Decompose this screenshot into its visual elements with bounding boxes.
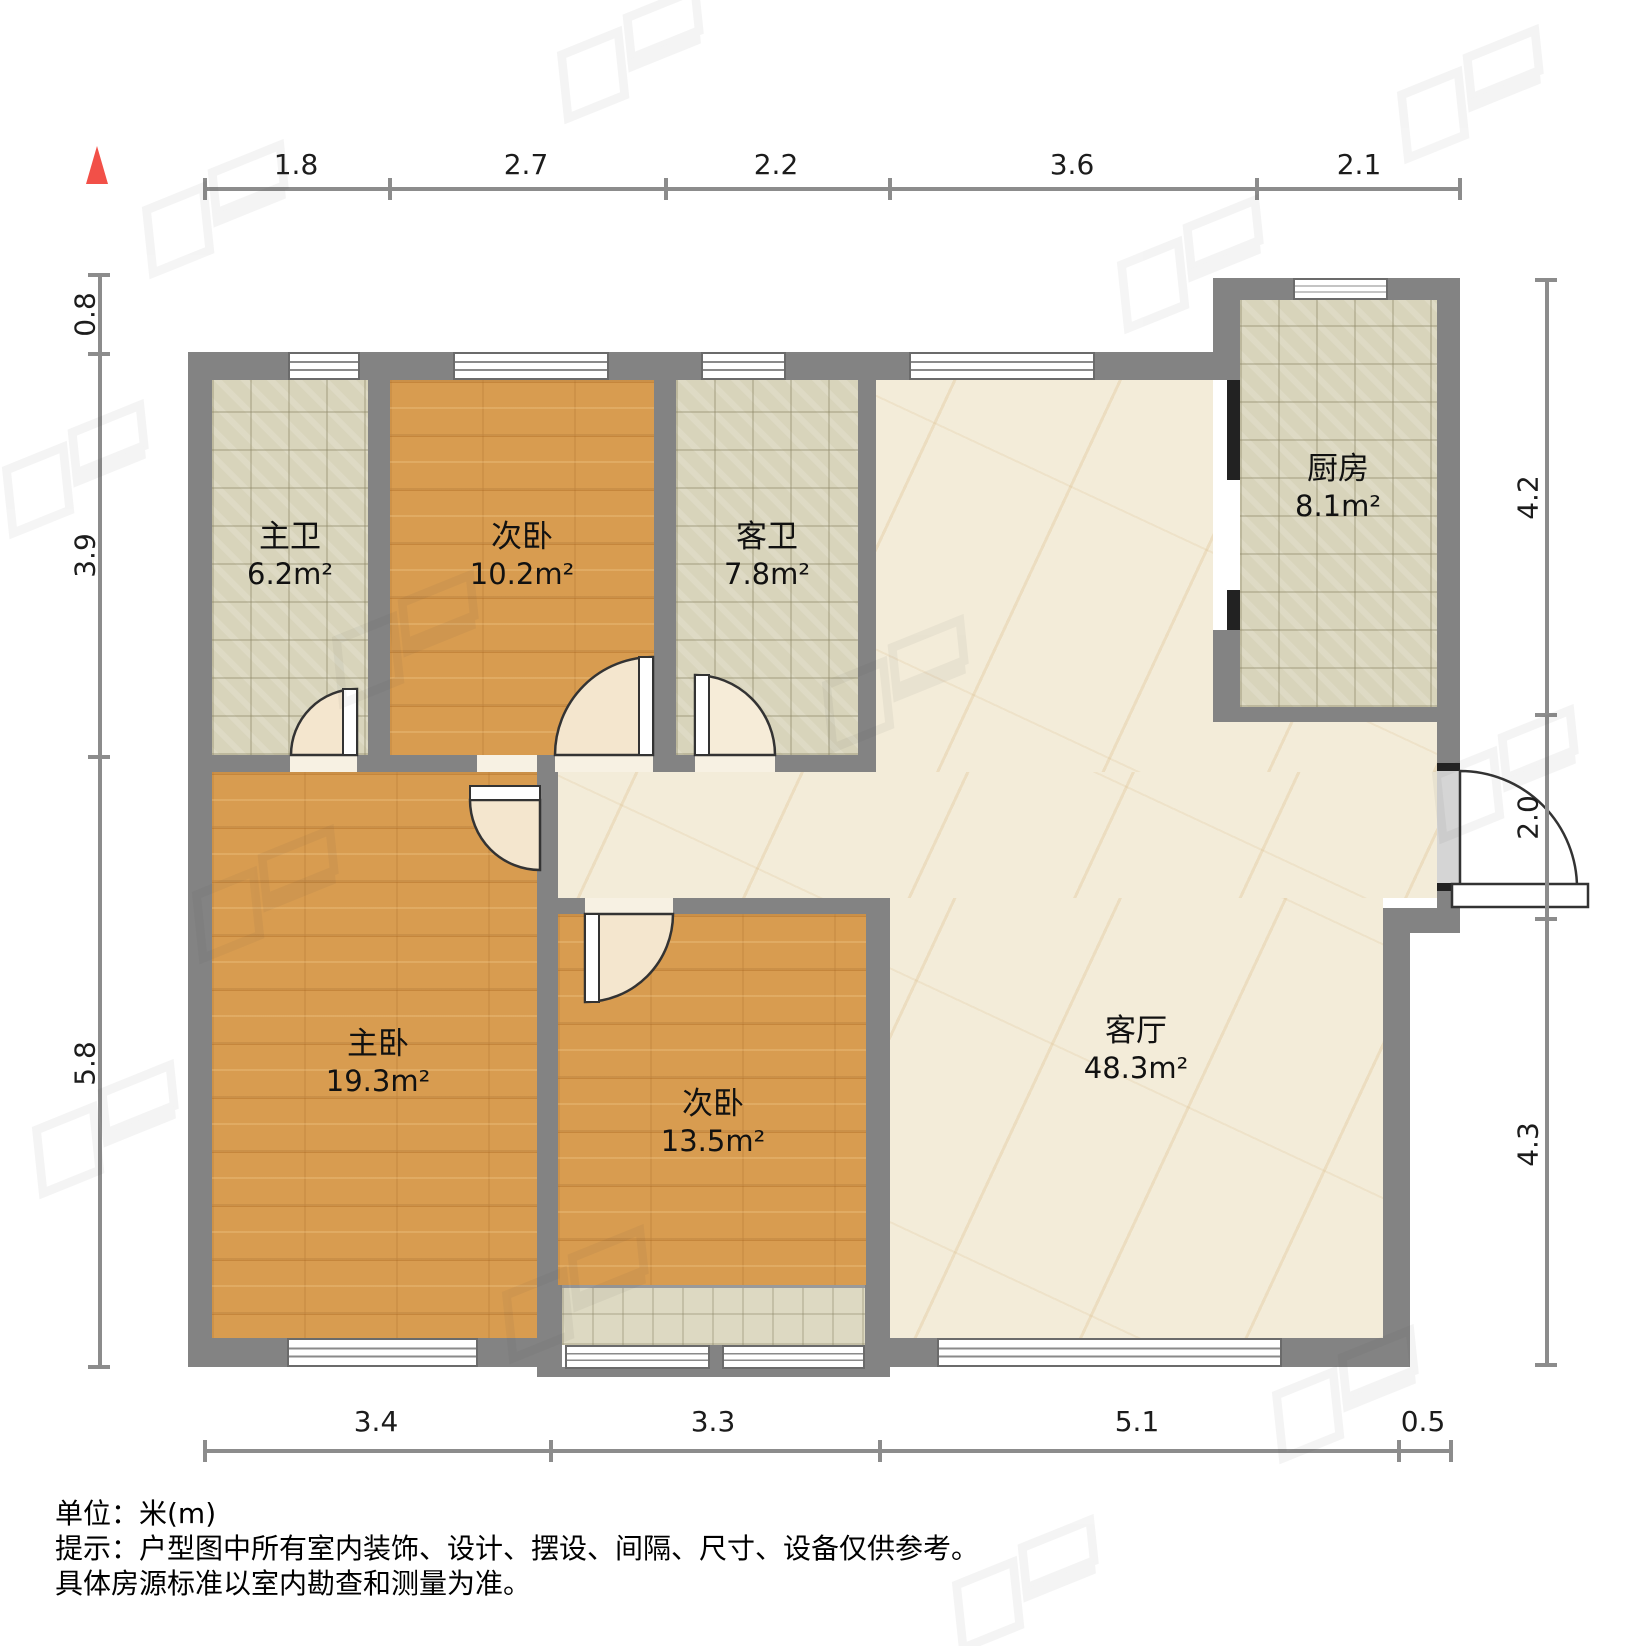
dim-label-left: 0.8 (69, 275, 102, 355)
dim-line-left (98, 273, 102, 1367)
dim-tick (1458, 178, 1462, 200)
window-living-bottom (937, 1338, 1282, 1367)
disclaimer-line1: 提示：户型图中所有室内装饰、设计、摆设、间隔、尺寸、设备仅供参考。 (55, 1531, 979, 1566)
entrance-jamb-bottom (1437, 883, 1460, 891)
door-leaf-entrance (1452, 884, 1588, 907)
room-label-second-bedroom-top: 次卧 10.2m² (412, 518, 632, 592)
dim-tick (203, 1440, 207, 1462)
dim-tick (388, 178, 392, 200)
unit-note: 单位：米(m) (55, 1496, 979, 1531)
dim-label-bottom: 0.5 (1383, 1405, 1463, 1438)
room-name: 主卫 (180, 518, 400, 556)
dim-label-left: 3.9 (69, 516, 102, 596)
dim-tick (88, 1365, 110, 1369)
dim-tick (664, 178, 668, 200)
dim-label-bottom: 3.3 (673, 1405, 753, 1438)
dim-tick (1535, 278, 1557, 282)
window-second-bedroom-top (453, 352, 609, 380)
dim-tick (1535, 1363, 1557, 1367)
window-guest-bath (701, 352, 786, 380)
room-label-master-bedroom: 主卧 19.3m² (268, 1025, 488, 1099)
wall-right-exterior-upper (1437, 278, 1460, 771)
window-bay-left (565, 1345, 710, 1369)
watermark (1396, 25, 1544, 170)
wall-bay-right (865, 1285, 890, 1377)
dim-tick (1535, 713, 1557, 717)
room-label-master-bath: 主卫 6.2m² (180, 518, 400, 592)
wall-hall-stub (212, 755, 290, 772)
window-living-top (909, 352, 1095, 380)
wall-right-step (1383, 908, 1460, 933)
window-master-bath (288, 352, 360, 380)
room-name: 次卧 (603, 1085, 823, 1123)
doorway-master-bedroom (470, 755, 540, 772)
floor-bay-window (562, 1285, 865, 1345)
dim-label-right: 4.2 (1512, 458, 1545, 538)
wall-bay-left (537, 1285, 562, 1377)
room-name: 主卧 (268, 1025, 488, 1063)
room-area: 13.5m² (603, 1123, 823, 1159)
wall-bedroom2-top-stub (558, 898, 585, 914)
dim-tick (878, 1440, 882, 1462)
wall-master-second-bedroom (537, 772, 558, 1338)
entrance-jamb-top (1437, 763, 1460, 771)
north-arrow-icon (86, 146, 108, 184)
room-area: 10.2m² (412, 556, 632, 592)
wall-left-exterior (188, 352, 212, 1367)
dim-label-bottom: 5.1 (1097, 1405, 1177, 1438)
doorway-second-bedroom-bottom (585, 898, 673, 914)
dim-line-bottom (203, 1449, 1453, 1453)
dim-label-top: 2.1 (1319, 148, 1399, 181)
floor-living-room-lower (876, 898, 1383, 1338)
room-label-second-bedroom-bottom: 次卧 13.5m² (603, 1085, 823, 1159)
room-label-living-room: 客厅 48.3m² (1026, 1012, 1246, 1086)
floor-plan-canvas: 主卫 6.2m² 次卧 10.2m² 客卫 7.8m² 厨房 8.1m² 主卧 … (0, 0, 1650, 1646)
watermark (31, 1060, 179, 1205)
wall-kitchen-left-upper (1213, 300, 1240, 380)
window-master-bedroom (287, 1338, 478, 1367)
wall-hall-stub (357, 755, 477, 772)
room-name: 客厅 (1026, 1012, 1246, 1050)
dim-label-top: 2.2 (736, 148, 816, 181)
disclaimer-line2: 具体房源标准以室内勘查和测量为准。 (55, 1566, 979, 1601)
dim-tick (888, 178, 892, 200)
wall-right-exterior-lower (1383, 933, 1410, 1367)
room-name: 厨房 (1228, 450, 1448, 488)
dim-tick (1255, 178, 1259, 200)
footer-notes: 单位：米(m) 提示：户型图中所有室内装饰、设计、摆设、间隔、尺寸、设备仅供参考… (55, 1496, 979, 1601)
floor-hallway (558, 772, 1437, 898)
wall-hall-stub (537, 755, 555, 772)
room-name: 客卫 (657, 518, 877, 556)
dim-label-bottom: 3.4 (336, 1405, 416, 1438)
wall-hall-stub (653, 755, 695, 772)
window-bay-right (722, 1345, 865, 1369)
dim-label-top: 1.8 (256, 148, 336, 181)
room-area: 48.3m² (1026, 1050, 1246, 1086)
dim-label-right: 2.0 (1512, 778, 1545, 858)
room-label-guest-bath: 客卫 7.8m² (657, 518, 877, 592)
room-area: 8.1m² (1228, 488, 1448, 524)
dim-label-top: 2.7 (486, 148, 566, 181)
dim-label-top: 3.6 (1032, 148, 1112, 181)
kitchen-door-jamb-lower (1227, 590, 1240, 630)
floor-living-room-upper (876, 380, 1213, 772)
room-area: 19.3m² (268, 1063, 488, 1099)
dim-label-right: 4.3 (1512, 1105, 1545, 1185)
doorway-guest-bath (695, 755, 775, 772)
dim-tick (88, 755, 110, 759)
wall-bedroom-living (866, 898, 890, 1338)
room-label-kitchen: 厨房 8.1m² (1228, 450, 1448, 524)
dim-tick (549, 1440, 553, 1462)
dim-label-left: 5.8 (69, 1024, 102, 1104)
room-area: 7.8m² (657, 556, 877, 592)
doorway-second-bedroom-top (555, 755, 653, 772)
window-kitchen (1293, 278, 1388, 300)
wall-bay-post (710, 1345, 722, 1369)
wall-kitchen-bottom (1213, 707, 1460, 722)
room-area: 6.2m² (180, 556, 400, 592)
dim-line-right (1545, 278, 1549, 1367)
floor-living-room-right (1213, 722, 1437, 772)
room-name: 次卧 (412, 518, 632, 556)
dim-tick (1535, 917, 1557, 921)
entrance-threshold (1437, 771, 1460, 891)
dim-tick (1449, 1440, 1453, 1462)
dim-tick (203, 178, 207, 200)
doorway-master-bath (290, 755, 357, 772)
watermark (556, 0, 704, 131)
wall-bedroom2-top-stub (673, 898, 866, 914)
dim-tick (1397, 1440, 1401, 1462)
